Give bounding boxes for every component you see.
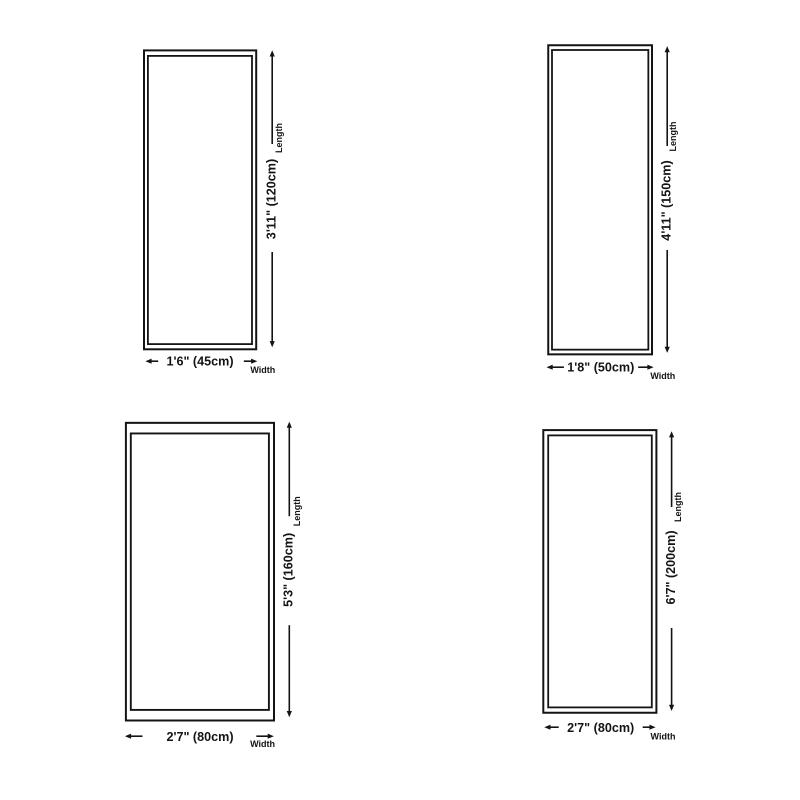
svg-text:Width: Width bbox=[651, 731, 676, 741]
svg-text:Width: Width bbox=[250, 739, 275, 749]
svg-text:2'7" (80cm): 2'7" (80cm) bbox=[567, 721, 634, 735]
svg-text:Length: Length bbox=[274, 123, 284, 153]
svg-text:2'7" (80cm): 2'7" (80cm) bbox=[166, 730, 233, 744]
svg-text:3'11" (120cm): 3'11" (120cm) bbox=[265, 159, 279, 239]
svg-text:Length: Length bbox=[292, 496, 302, 526]
svg-text:6'7" (200cm): 6'7" (200cm) bbox=[664, 530, 678, 604]
svg-text:Length: Length bbox=[673, 492, 683, 522]
svg-text:5'3" (160cm): 5'3" (160cm) bbox=[282, 533, 296, 607]
svg-text:Width: Width bbox=[250, 365, 275, 375]
svg-text:Width: Width bbox=[650, 371, 675, 381]
svg-text:Length: Length bbox=[668, 122, 678, 152]
svg-text:1'6" (45cm): 1'6" (45cm) bbox=[166, 355, 233, 369]
svg-text:4'11" (150cm): 4'11" (150cm) bbox=[660, 160, 674, 240]
svg-text:1'8" (50cm): 1'8" (50cm) bbox=[567, 361, 634, 375]
